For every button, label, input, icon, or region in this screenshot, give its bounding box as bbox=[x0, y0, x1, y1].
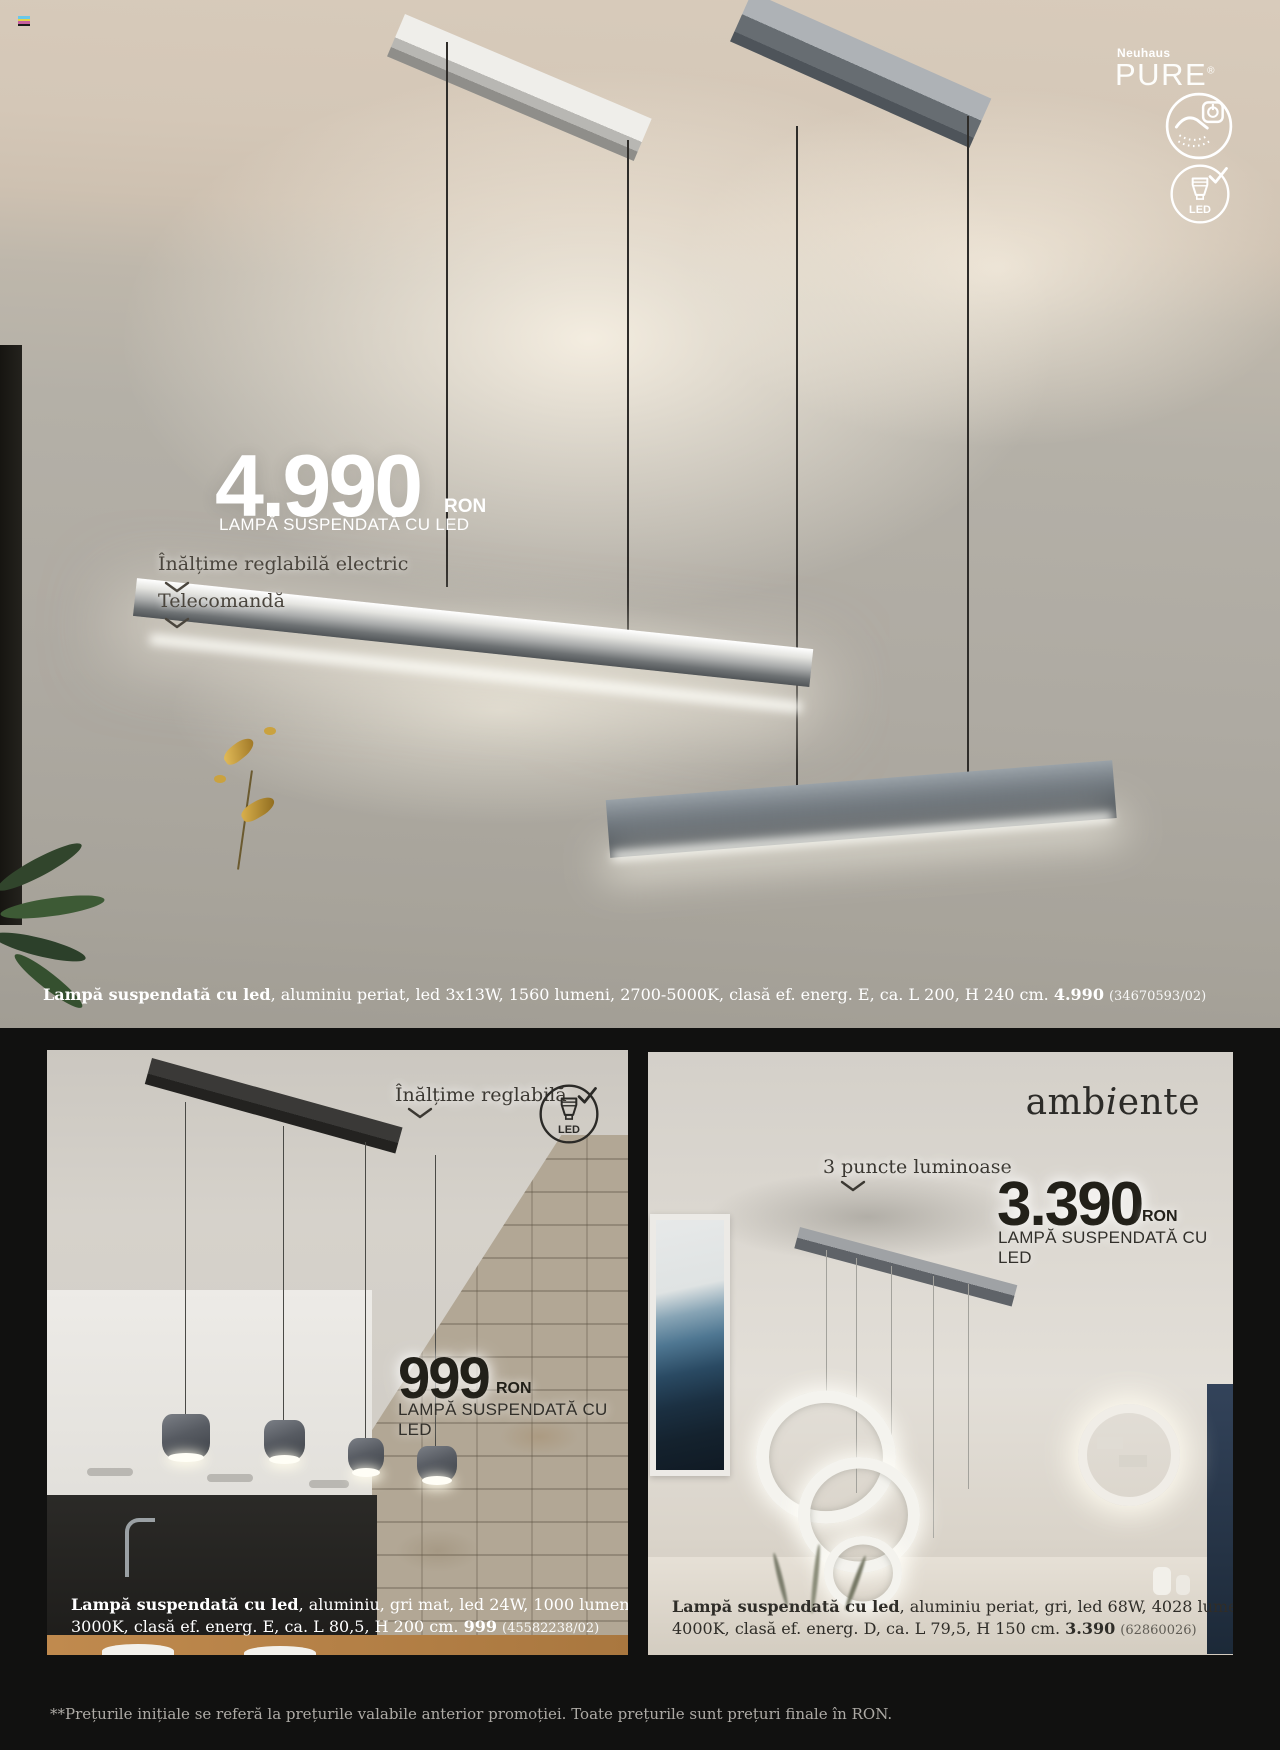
card-product-type: LAMPĂ SUSPENDATĂ CU LED bbox=[998, 1228, 1233, 1268]
decor-sink bbox=[244, 1646, 316, 1655]
decor-leaf bbox=[0, 927, 88, 967]
caption-price: 4.990 bbox=[1054, 985, 1104, 1004]
decor-gold-birds bbox=[212, 715, 312, 885]
decor-canopy-black bbox=[145, 1058, 403, 1154]
decor-leaf bbox=[0, 891, 106, 923]
caption-sku: (62860026) bbox=[1120, 1623, 1196, 1638]
brand-logo-text: PURE bbox=[1115, 57, 1207, 92]
caption-price: 999 bbox=[464, 1617, 497, 1636]
decor-bird bbox=[221, 734, 258, 768]
decor-faucet bbox=[125, 1518, 155, 1577]
decor-cabinet-handle bbox=[87, 1468, 133, 1476]
caption-line: Lampă suspendată cu led, aluminiu, gri m… bbox=[71, 1595, 628, 1614]
decor-painting bbox=[650, 1214, 730, 1476]
decor-vase bbox=[1176, 1575, 1190, 1595]
led-checkmark-icon: LED bbox=[537, 1082, 601, 1146]
pendant-shade bbox=[264, 1420, 305, 1461]
pendant-wire bbox=[968, 1284, 969, 1489]
caption-sku: (34670593/02) bbox=[1109, 989, 1206, 1004]
card-caption: Lampă suspendată cu led, aluminiu, gri m… bbox=[71, 1594, 628, 1640]
decor-bird bbox=[238, 793, 277, 825]
hero-caption: Lampă suspendată cu led, aluminiu periat… bbox=[43, 984, 1206, 1008]
decor-gold-leaf bbox=[214, 775, 226, 783]
led-badge-label: LED bbox=[558, 1124, 580, 1136]
product-card-small: Înălțime reglabilă LED 999 RON LAMPĂ SUS… bbox=[47, 1050, 628, 1655]
caption-product-name: Lampă suspendată cu led bbox=[71, 1595, 299, 1614]
caption-details: , aluminiu, gri mat, led 24W, 1000 lumen… bbox=[299, 1595, 628, 1614]
ambiente-part: ente bbox=[1118, 1082, 1200, 1123]
registration-mark bbox=[18, 16, 30, 26]
card-feature: 3 puncte luminoase bbox=[823, 1156, 1012, 1178]
remote-control-icon bbox=[1163, 90, 1235, 162]
decor-vase bbox=[1153, 1567, 1171, 1595]
card-currency: RON bbox=[1142, 1208, 1178, 1226]
decor-kitchen-cabinets bbox=[47, 1290, 372, 1495]
pendant-wire bbox=[933, 1276, 934, 1538]
ambiente-part: amb bbox=[1026, 1082, 1106, 1123]
pendant-wire bbox=[365, 1142, 366, 1442]
card-price: 3.390 bbox=[997, 1174, 1142, 1236]
hero-product-type: LAMPĂ SUSPENDATĂ CU LED bbox=[219, 515, 469, 535]
brand-trademark: ® bbox=[1207, 66, 1216, 77]
catalog-page: Neuhaus PURE® LED 4.990 RON LAMPĂ SUSPEN… bbox=[0, 0, 1280, 1750]
pendant-wire bbox=[627, 140, 629, 645]
card-currency: RON bbox=[496, 1380, 532, 1398]
decor-painting-art bbox=[656, 1220, 724, 1470]
pendant-wire bbox=[283, 1126, 284, 1424]
caption-details: , aluminiu periat, led 3x13W, 1560 lumen… bbox=[271, 985, 1054, 1004]
regmark-black bbox=[18, 24, 30, 27]
decor-sink bbox=[102, 1644, 174, 1655]
pendant-wire bbox=[826, 1250, 827, 1400]
pendant-wire bbox=[891, 1266, 892, 1446]
brand-logo-pure: PURE® bbox=[1115, 57, 1216, 93]
feature-item: Telecomandă bbox=[158, 590, 285, 612]
caption-line: Lampă suspendată cu led, aluminiu periat… bbox=[672, 1597, 1233, 1616]
decor-leaf bbox=[0, 837, 86, 897]
card-product-type: LAMPĂ SUSPENDATĂ CU LED bbox=[398, 1400, 628, 1440]
decor-cabinet-handle bbox=[207, 1474, 253, 1482]
ambiente-part-italic: i bbox=[1106, 1082, 1118, 1123]
pendant-wire bbox=[185, 1102, 186, 1417]
product-card-ambiente: ambiente 3 puncte luminoase 3.390 RON LA… bbox=[648, 1052, 1233, 1655]
caption-line: 4000K, clasă ef. energ. D, ca. L 79,5, H… bbox=[672, 1619, 1197, 1638]
decor-gold-leaf bbox=[264, 727, 276, 735]
decor-sconce-detail bbox=[1119, 1455, 1147, 1467]
footer-note: **Prețurile inițiale se referă la prețur… bbox=[50, 1705, 892, 1723]
ambiente-logo: ambiente bbox=[1026, 1082, 1200, 1123]
wall-sconce-lamp bbox=[1078, 1404, 1180, 1506]
feature-item: Înălțime reglabilă electric bbox=[158, 553, 408, 575]
decor-sconce-detail bbox=[1097, 1437, 1123, 1449]
led-checkmark-icon: LED bbox=[1168, 162, 1232, 226]
hero-photo: Neuhaus PURE® LED 4.990 RON LAMPĂ SUSPEN… bbox=[0, 0, 1280, 1028]
led-badge-label: LED bbox=[1189, 204, 1211, 216]
caption-product-name: Lampă suspendată cu led bbox=[672, 1597, 900, 1616]
decor-canopy-right bbox=[730, 0, 991, 148]
caption-product-name: Lampă suspendată cu led bbox=[43, 985, 271, 1004]
chevron-down-icon bbox=[407, 1107, 433, 1119]
caption-sku: (45582238/02) bbox=[502, 1621, 599, 1636]
caption-details: 3000K, clasă ef. energ. E, ca. L 80,5, H… bbox=[71, 1617, 464, 1636]
decor-canopy-left bbox=[387, 14, 652, 161]
pendant-shade bbox=[162, 1414, 210, 1459]
pendant-wire bbox=[967, 116, 969, 811]
pendant-shade bbox=[348, 1438, 384, 1474]
chevron-down-icon bbox=[840, 1180, 866, 1192]
card-caption: Lampă suspendată cu led, aluminiu periat… bbox=[672, 1596, 1233, 1642]
decor-cabinet-handle bbox=[309, 1480, 349, 1488]
caption-price: 3.390 bbox=[1065, 1619, 1115, 1638]
caption-details: 4000K, clasă ef. energ. D, ca. L 79,5, H… bbox=[672, 1619, 1065, 1638]
chevron-down-icon bbox=[164, 617, 190, 629]
caption-line: 3000K, clasă ef. energ. E, ca. L 80,5, H… bbox=[71, 1617, 599, 1636]
caption-details: , aluminiu periat, gri, led 68W, 4028 lu… bbox=[900, 1597, 1233, 1616]
pendant-shade bbox=[417, 1446, 457, 1482]
